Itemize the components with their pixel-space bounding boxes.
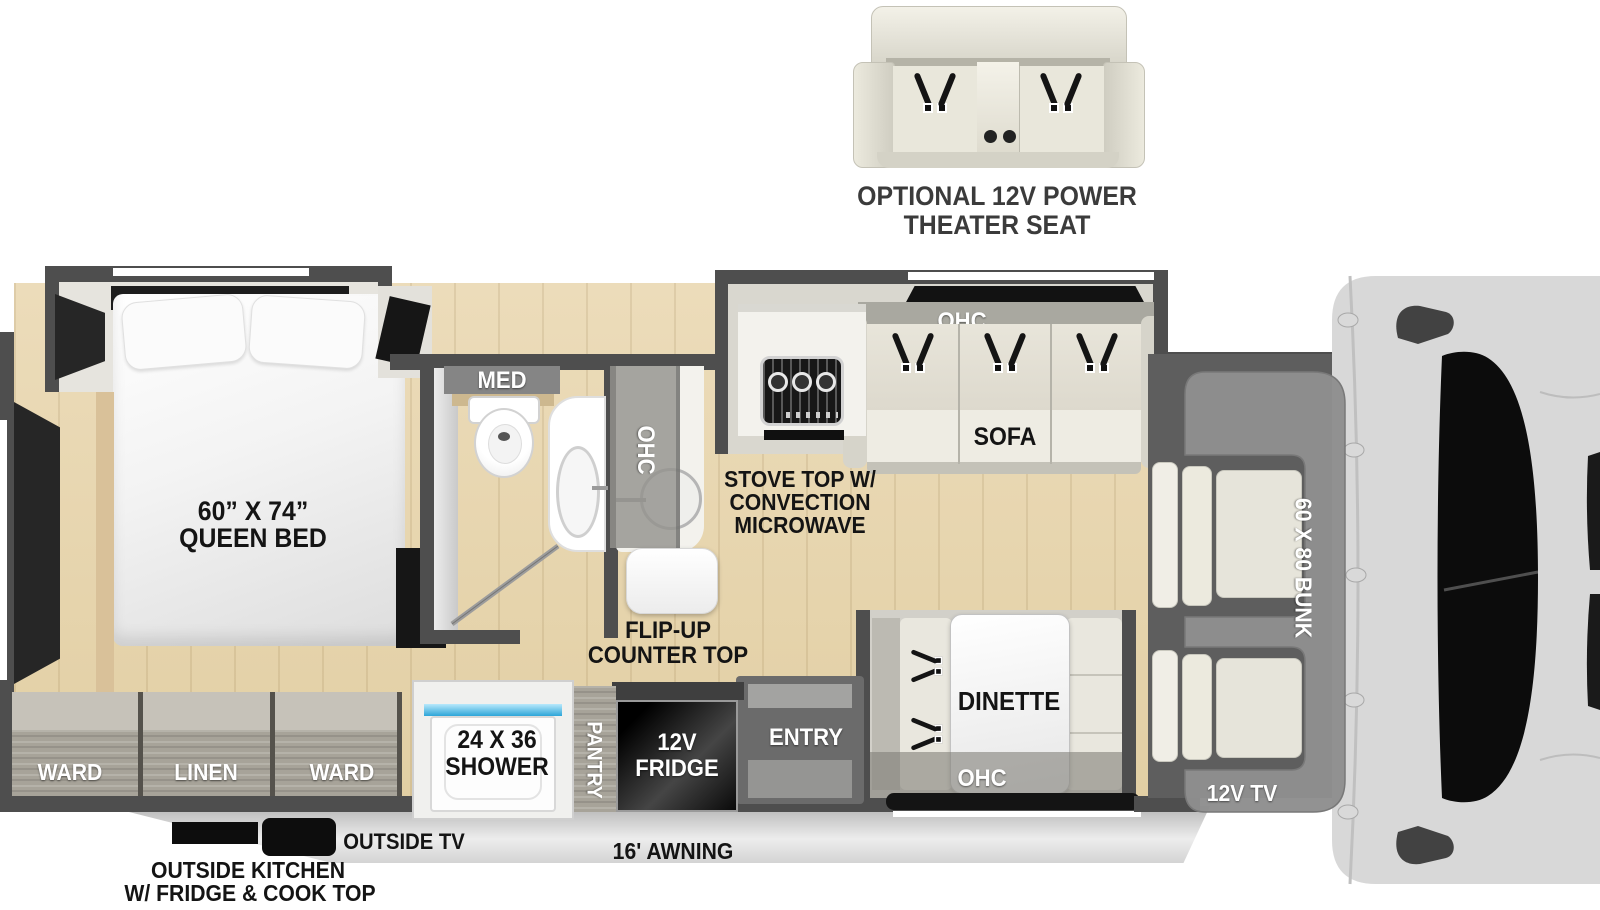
bedroom-slide-window-strip <box>113 268 309 276</box>
bathroom-wall-left <box>420 354 434 644</box>
pillow <box>120 293 247 371</box>
dinette-window-strip <box>893 811 1141 817</box>
linen-label: LINEN <box>174 760 237 784</box>
bed-size-label-line2: QUEEN BED <box>179 524 327 552</box>
ward-left-label: WARD <box>38 760 103 784</box>
dinette-window-icon <box>886 793 1140 810</box>
cab-tv-label: 12V TV <box>1207 781 1278 805</box>
pantry-label: PANTRY <box>584 721 605 798</box>
dinette-label: DINETTE <box>958 688 1060 715</box>
ward-right-label: WARD <box>310 760 375 784</box>
rear-window-icon <box>14 402 60 684</box>
entry-label: ENTRY <box>769 725 843 750</box>
outside-kitchen-label-line1: OUTSIDE KITCHEN <box>151 858 345 882</box>
cab-seat <box>1152 462 1178 608</box>
sofa-slide-window-strip <box>908 272 1158 280</box>
outside-tv-icon <box>262 818 336 856</box>
awning-label: 16' AWNING <box>613 839 734 863</box>
toilet-flush-icon <box>498 432 510 441</box>
cab-seat <box>1152 650 1178 762</box>
stitch-mark-icon <box>1069 330 1125 374</box>
theater-seat-base <box>877 152 1119 168</box>
kitchen-ohc-label: OHC <box>633 425 657 474</box>
flip-up-label-line2: COUNTER TOP <box>588 643 748 668</box>
bathroom-wall-face <box>434 368 458 630</box>
sofa-cushion-divider <box>1050 324 1052 464</box>
entry-step <box>748 760 852 798</box>
stitch-mark-icon <box>909 712 943 756</box>
outside-kitchen-label-line2: W/ FRIDGE & COOK TOP <box>124 881 375 905</box>
nightstand <box>96 392 114 698</box>
stitch-mark-icon <box>1033 70 1089 114</box>
sofa-front-lip <box>867 462 1141 474</box>
stitch-mark-icon <box>907 70 963 114</box>
toilet-bowl-inner <box>488 424 522 464</box>
flip-up-counter <box>626 548 718 614</box>
dinette-bench-divider <box>1066 674 1122 676</box>
shower-label-line1: 24 X 36 <box>457 727 536 753</box>
rv-floorplan: OUTSIDE TV 16' AWNING OUTSIDE KITCHEN W/… <box>0 0 1600 910</box>
sofa-label: SOFA <box>974 424 1037 450</box>
entry-step <box>748 684 852 708</box>
bathroom-sink-icon <box>556 446 600 538</box>
dinette-ohc-label: OHC <box>957 766 1006 791</box>
theater-seat <box>853 6 1143 170</box>
stove-label-line1: STOVE TOP W/ <box>724 467 876 491</box>
stitch-mark-icon <box>885 330 941 374</box>
theater-seat-label-line1: OPTIONAL 12V POWER <box>857 182 1137 210</box>
bunk-label: 60 X 80 BUNK <box>1292 498 1315 638</box>
shower-label-line2: SHOWER <box>445 754 549 780</box>
fridge-label-line1: 12V <box>657 730 696 755</box>
outside-tv-label: OUTSIDE TV <box>343 830 464 853</box>
fridge-counter <box>612 682 744 700</box>
oven-handle <box>764 430 844 440</box>
bed-size-label-line1: 60” X 74” <box>198 497 308 525</box>
burner-icon <box>768 372 788 392</box>
stove-label-line2: CONVECTION <box>729 490 870 514</box>
fridge-label-line2: FRIDGE <box>635 756 718 781</box>
shower-water-strip <box>424 704 562 716</box>
stitch-mark-icon <box>909 644 943 688</box>
faucet-icon <box>592 486 608 490</box>
storage-row-top <box>12 692 402 730</box>
theater-seat-label-line2: THEATER SEAT <box>904 211 1091 239</box>
stove-label-line3: MICROWAVE <box>734 513 865 537</box>
cabover-bunk <box>1180 366 1350 818</box>
pillow <box>248 294 366 370</box>
stove-knobs <box>786 412 838 418</box>
sofa-cushion-divider <box>958 324 960 464</box>
theater-seat-console <box>977 62 1019 158</box>
cupholder-icon <box>984 130 997 143</box>
rear-window-strip <box>0 420 7 680</box>
med-cabinet-label: MED <box>477 368 526 393</box>
dinette-bench-divider <box>1066 732 1122 734</box>
burner-icon <box>816 372 836 392</box>
bathroom-wall-bottom <box>420 630 520 644</box>
flip-up-label-line1: FLIP-UP <box>625 618 711 643</box>
storage-divider <box>270 692 275 796</box>
stitch-mark-icon <box>977 330 1033 374</box>
cupholder-icon <box>1003 130 1016 143</box>
burner-icon <box>792 372 812 392</box>
front-wall-step <box>1154 270 1168 366</box>
storage-divider <box>138 692 143 796</box>
outside-kitchen-door-icon <box>172 822 258 844</box>
storage-divider <box>397 692 402 796</box>
